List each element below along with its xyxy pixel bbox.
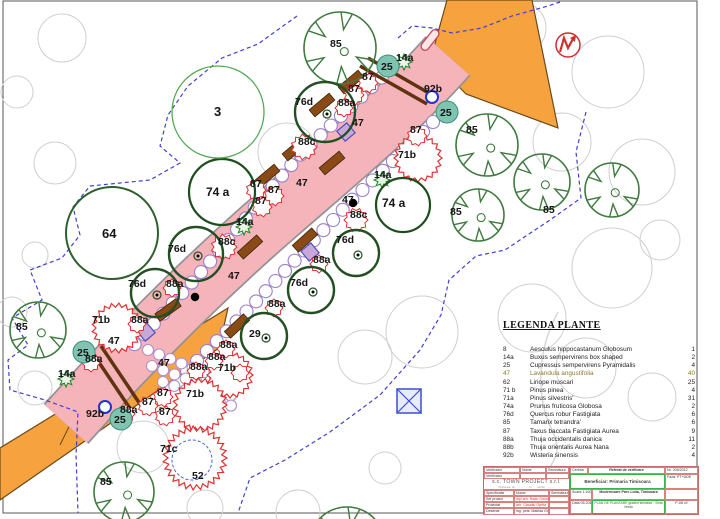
tree-center-dot <box>312 291 315 294</box>
legend-row: 88aThuja occidentalis danica11 <box>503 436 695 444</box>
title-block-left: Verificator Nume Semnatura Verificator s… <box>484 467 570 514</box>
existing-tree-symbol <box>187 490 223 519</box>
cerinta-cell: Cerinta <box>570 467 588 474</box>
legend-row: 47Lavandula angustifolia40 <box>503 370 695 378</box>
legend-qty: 31 <box>681 395 695 403</box>
tree-notch <box>517 162 530 174</box>
tree-center-dot <box>326 113 329 116</box>
legend-row: 92bWisteria sinensis4 <box>503 452 695 460</box>
plant-label: 25 <box>114 414 126 426</box>
legend-name: Buxus sempervirens box shaped <box>530 354 681 362</box>
plant-label: 25 <box>440 107 452 119</box>
legend-row: 71 bPinus pinea4 <box>503 387 695 395</box>
staff-role: Desenat <box>484 508 514 514</box>
existing-tree-symbol <box>640 220 680 260</box>
legend-code: 92b <box>503 452 530 460</box>
plant-label: 87 <box>250 178 262 190</box>
plant-label: 76d <box>128 278 146 290</box>
scara-cell: Scara 1:100 <box>570 489 592 500</box>
scara-row: Scara 1:100 Modernizare Parc Lidia, Timi… <box>570 489 698 500</box>
staff-rows: Sef proiectdipl.arh. Radu GolumbaProiect… <box>484 496 569 515</box>
tree-center-mark <box>611 189 619 197</box>
plant-label: 87 <box>255 195 267 207</box>
tree-notch <box>555 189 569 199</box>
plant-label: 3 <box>214 104 221 119</box>
legend-qty: 40 <box>681 370 695 378</box>
legend-code: 47 <box>503 370 530 378</box>
legend-qty: 25 <box>681 379 695 387</box>
beneficiar-cell: Beneficiar: Primaria Timisoara <box>570 474 665 489</box>
plant-label: 76d <box>336 234 354 246</box>
tree-notch <box>484 161 494 176</box>
legend-name: Thuja occidentalis danica <box>530 436 681 444</box>
title-block-right: Cerinta Referat de verificare Nr. 205/20… <box>570 467 698 514</box>
project-title-cell: Modernizare Parc Lidia, Timisoara <box>592 489 665 500</box>
plant-label: 14a <box>236 216 254 228</box>
plant-label: 25 <box>381 61 393 73</box>
tree-notch <box>610 204 619 217</box>
north-arrow-icon <box>556 33 580 57</box>
existing-tree-symbol <box>38 14 86 62</box>
plant-label: 85 <box>16 321 28 333</box>
hedge-plant-symbol <box>288 254 301 267</box>
plansa-number-cell: P-08 v2 <box>665 500 698 514</box>
staff-name: ing. peis. Matilda Groza <box>514 508 549 514</box>
plant-label: 64 <box>102 226 117 241</box>
legend-code: 25 <box>503 362 530 370</box>
plansa-row: Data 05.2012 PLAN DE PLANTARE gradini te… <box>570 500 698 514</box>
legend-name: Liriope muscari <box>530 379 681 387</box>
data-cell: Data 05.2012 <box>570 500 592 514</box>
existing-tree-symbol <box>572 36 644 108</box>
plansa-title-cell: PLAN DE PLANTARE gradini tematice - Stra… <box>592 500 665 514</box>
plant-label: 76d <box>290 277 308 289</box>
plant-label: 88a <box>208 351 226 363</box>
tree-center-dot <box>357 254 360 257</box>
plant-label: 92b <box>86 408 104 420</box>
hedge-plant-symbol <box>356 184 369 197</box>
hedge-plant-symbol <box>176 358 187 369</box>
legend-code: 88b <box>503 444 530 452</box>
plant-label: 74 a <box>382 196 406 210</box>
faza-cell: Faza: PT+DDE <box>665 474 698 489</box>
legend-items: 8Aesculus hippocastanum Globosum114aBuxu… <box>503 346 695 460</box>
existing-tree-symbol <box>18 371 52 405</box>
plant-label: 14a <box>58 368 76 380</box>
legend-title: LEGENDA PLANTE <box>503 320 695 331</box>
legend-code: 71a <box>503 395 530 403</box>
hedge-plant-symbol <box>324 119 337 132</box>
referat-cell: Referat de verificare <box>588 467 665 474</box>
company-subline: Timisoara, str. ................ nr. ...… <box>484 485 569 489</box>
legend-name: Quercus robur Fastigiata <box>530 411 681 419</box>
plant-label: 76d <box>168 243 186 255</box>
tree-center-dot <box>197 255 200 258</box>
tree-notch <box>516 190 530 201</box>
legend-row: 74aPrunus fruticosa Globosa2 <box>503 403 695 411</box>
legend-name: Tamarix tetrandra' <box>530 419 681 427</box>
legend-qty: 2 <box>681 403 695 411</box>
tree-center-mark <box>487 144 495 152</box>
plant-label: 88c <box>218 236 236 248</box>
hedge-plant-symbol <box>169 369 180 380</box>
plant-label: 14a <box>374 169 392 181</box>
legend-name: Taxus baccata Fastigiata Aurea <box>530 428 681 436</box>
legend-code: 85 <box>503 419 530 427</box>
plant-label: 85 <box>450 206 462 218</box>
hedge-plant-symbol <box>317 224 330 237</box>
tree-76d-symbol <box>288 267 334 313</box>
tree-notch <box>341 12 352 30</box>
tree-notch <box>588 170 601 181</box>
hedge-plant-symbol <box>269 275 282 288</box>
legend-code: 62 <box>503 379 530 387</box>
empty-cell <box>665 489 698 500</box>
tree-notch <box>13 310 26 322</box>
existing-tree-symbol <box>386 296 458 368</box>
tree-notch <box>12 338 26 349</box>
plant-label: 88a <box>166 278 184 290</box>
hedge-plant-symbol <box>204 255 217 268</box>
hedge-plant-symbol <box>279 264 292 277</box>
legend-name: Pinus pinea <box>530 387 681 395</box>
tree-notch <box>458 153 473 165</box>
plant-label: 85 <box>330 38 342 50</box>
legend-code: 8 <box>503 346 530 354</box>
plant-label: 47 <box>108 335 120 347</box>
plant-label: 87 <box>142 396 154 408</box>
legend-row: 14aBuxus sempervirens box shaped2 <box>503 354 695 362</box>
hedge-plant-symbol <box>250 295 263 308</box>
tree-notch <box>501 153 516 164</box>
tree-center-mark <box>124 491 132 499</box>
existing-tree-symbol <box>338 330 392 384</box>
hedge-plant-symbol <box>158 377 169 388</box>
legend-qty: 2 <box>681 444 695 452</box>
existing-tree-symbol <box>34 142 76 184</box>
legend-code: 88a <box>503 436 530 444</box>
legend-code: 71 b <box>503 387 530 395</box>
plant-label: 87 <box>410 124 422 136</box>
plant-label: 92b <box>424 83 442 95</box>
referat-row: Cerinta Referat de verificare Nr. 205/20… <box>570 467 698 474</box>
plant-label: 88c <box>350 209 368 221</box>
staff-signature <box>549 508 569 514</box>
plant-label: 71b <box>92 314 110 326</box>
plant-label: 25 <box>77 347 89 359</box>
legend-name: Cupressus sempervirens Pyramidalis <box>530 362 681 370</box>
plant-label: 88a <box>268 298 286 310</box>
plant-label: 87 <box>268 184 280 196</box>
plant-label: 87 <box>362 71 374 83</box>
tree-notch <box>307 58 324 71</box>
title-block: Verificator Nume Semnatura Verificator s… <box>483 466 699 515</box>
plant-label: 29 <box>249 328 261 340</box>
existing-tree-symbol <box>369 452 401 484</box>
tree-76d-symbol <box>241 313 287 359</box>
plant-label: 47 <box>352 117 364 129</box>
legend-qty: 1 <box>681 346 695 354</box>
tree-center-dot <box>265 337 268 340</box>
legend-qty: 4 <box>681 387 695 395</box>
legend-row: 87Taxus baccata Fastigiata Aurea9 <box>503 428 695 436</box>
tree-notch <box>488 114 498 129</box>
planting-plan-sheet: { "legend": { "title": "LEGENDA PLANTE",… <box>0 0 720 519</box>
legend-qty: 4 <box>681 452 695 460</box>
hedge-plant-symbol <box>185 276 198 289</box>
legend-row: 85Tamarix tetrandra'6 <box>503 419 695 427</box>
legend-row: 62Liriope muscari25 <box>503 379 695 387</box>
hedge-plant-symbol <box>259 285 272 298</box>
tree-notch <box>51 337 65 347</box>
legend-row: 8Aesculus hippocastanum Globosum1 <box>503 346 695 354</box>
legend-name: Wisteria sinensis <box>530 452 681 460</box>
company-cell: s.c. TOWN PROJECT s.r.l. Timisoara, str.… <box>484 479 569 490</box>
plant-label: 87 <box>159 406 171 418</box>
plant-legend: LEGENDA PLANTE 8Aesculus hippocastanum G… <box>503 320 695 460</box>
tree-center-dot <box>156 294 159 297</box>
legend-name: Prunus fruticosa Globosa <box>530 403 681 411</box>
plant-label: 88a <box>338 97 356 109</box>
legend-name: Pinus silvestris' <box>530 395 681 403</box>
existing-tree-symbol <box>276 490 320 519</box>
plant-label: 87 <box>348 83 360 95</box>
plant-label: 88a <box>313 254 331 266</box>
project-number-cell: Nr. 205/2012 <box>665 467 698 474</box>
legend-qty: 6 <box>681 411 695 419</box>
tree-notch <box>476 229 484 241</box>
plant-label: 52 <box>192 470 204 482</box>
tree-center-mark <box>37 329 45 337</box>
plant-label: 87 <box>157 387 169 399</box>
plant-label: 71b <box>398 149 416 161</box>
hedge-plant-symbol <box>285 159 298 172</box>
plant-label: 47 <box>342 194 354 206</box>
legend-row: 25Cupressus sempervirens Pyramidalis4 <box>503 362 695 370</box>
tree-notch <box>36 345 45 358</box>
plant-label: 88a <box>190 361 208 373</box>
legend-code: 14a <box>503 354 530 362</box>
legend-name: Aesculus hippocastanum Globosum <box>530 346 681 354</box>
plant-label: 76d <box>295 96 313 108</box>
hedge-plant-symbol <box>143 345 154 356</box>
plant-label: 47 <box>296 177 308 189</box>
staff-row: Desenating. peis. Matilda Groza <box>484 508 569 514</box>
plant-label: 85 <box>466 124 478 136</box>
legend-code: 87 <box>503 428 530 436</box>
legend-code: 74a <box>503 403 530 411</box>
plant-label: 47 <box>158 357 170 369</box>
hedge-plant-symbol <box>195 266 208 279</box>
plant-label: 47 <box>228 270 240 282</box>
tree-point-symbol <box>191 293 199 301</box>
legend-name: Thuja orientalis Aurea Nana <box>530 444 681 452</box>
legend-name: Lavandula angustifolia <box>530 370 681 378</box>
tree-notch <box>96 500 110 511</box>
hedge-plant-symbol <box>327 214 340 227</box>
tree-center-mark <box>477 214 485 222</box>
legend-code: 76d <box>503 411 530 419</box>
tree-notch <box>138 500 153 511</box>
plant-label: 88a <box>131 314 149 326</box>
legend-qty: 2 <box>681 354 695 362</box>
existing-tree-symbol <box>1 76 33 108</box>
legend-row: 76dQuercus robur Fastigiata6 <box>503 411 695 419</box>
plant-label: 88a <box>220 339 238 351</box>
hedge-plant-symbol <box>169 380 180 391</box>
plant-label: 71b <box>218 362 236 374</box>
plant-label: 74 a <box>206 185 230 199</box>
tree-center-mark <box>541 181 549 189</box>
beneficiar-row: Beneficiar: Primaria Timisoara Faza: PT+… <box>570 474 698 489</box>
plant-label: 71b <box>186 388 204 400</box>
plant-label: 85 <box>543 204 555 216</box>
legend-row: 88bThuja orientalis Aurea Nana2 <box>503 444 695 452</box>
legend-qty: 6 <box>681 419 695 427</box>
plant-label: 71c <box>160 443 178 455</box>
tree-notch <box>308 22 325 37</box>
plant-label: 88c <box>298 136 316 148</box>
legend-row: 71aPinus silvestris'31 <box>503 395 695 403</box>
plant-label: 14a <box>396 52 414 64</box>
legend-qty: 11 <box>681 436 695 444</box>
hedge-plant-symbol <box>147 361 158 372</box>
legend-qty: 4 <box>681 362 695 370</box>
plant-label: 85 <box>100 476 112 488</box>
legend-qty: 9 <box>681 428 695 436</box>
